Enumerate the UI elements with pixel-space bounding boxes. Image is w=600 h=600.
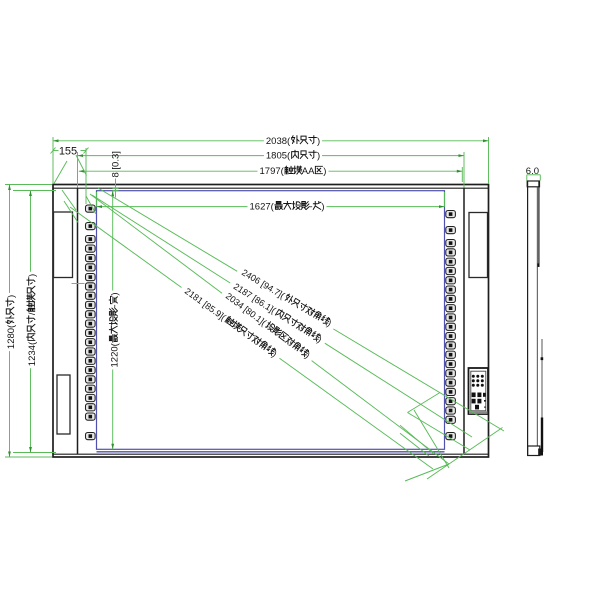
svg-text:-: -	[110, 304, 121, 307]
svg-text:/: /	[27, 312, 38, 315]
svg-text:AA: AA	[302, 166, 315, 177]
svg-text:-: -	[309, 202, 312, 213]
svg-text:1280(: 1280(	[6, 324, 17, 349]
svg-text:): )	[323, 166, 326, 177]
svg-text:): )	[317, 136, 320, 147]
svg-text:): )	[27, 274, 38, 277]
svg-text:): )	[317, 151, 320, 162]
svg-text:): )	[321, 202, 324, 213]
svg-text:): )	[6, 295, 17, 298]
svg-text:8 [0.3]: 8 [0.3]	[110, 151, 121, 177]
svg-text:2038(: 2038(	[266, 136, 291, 147]
svg-text:1805(: 1805(	[266, 151, 291, 162]
svg-text:1234(: 1234(	[27, 341, 38, 366]
svg-text:1797(: 1797(	[260, 166, 285, 177]
svg-text:): )	[110, 292, 121, 295]
svg-text:1220(: 1220(	[110, 342, 121, 367]
svg-text:155: 155	[59, 146, 77, 158]
svg-text:6.0: 6.0	[526, 166, 539, 177]
svg-text:1627(: 1627(	[250, 202, 275, 213]
